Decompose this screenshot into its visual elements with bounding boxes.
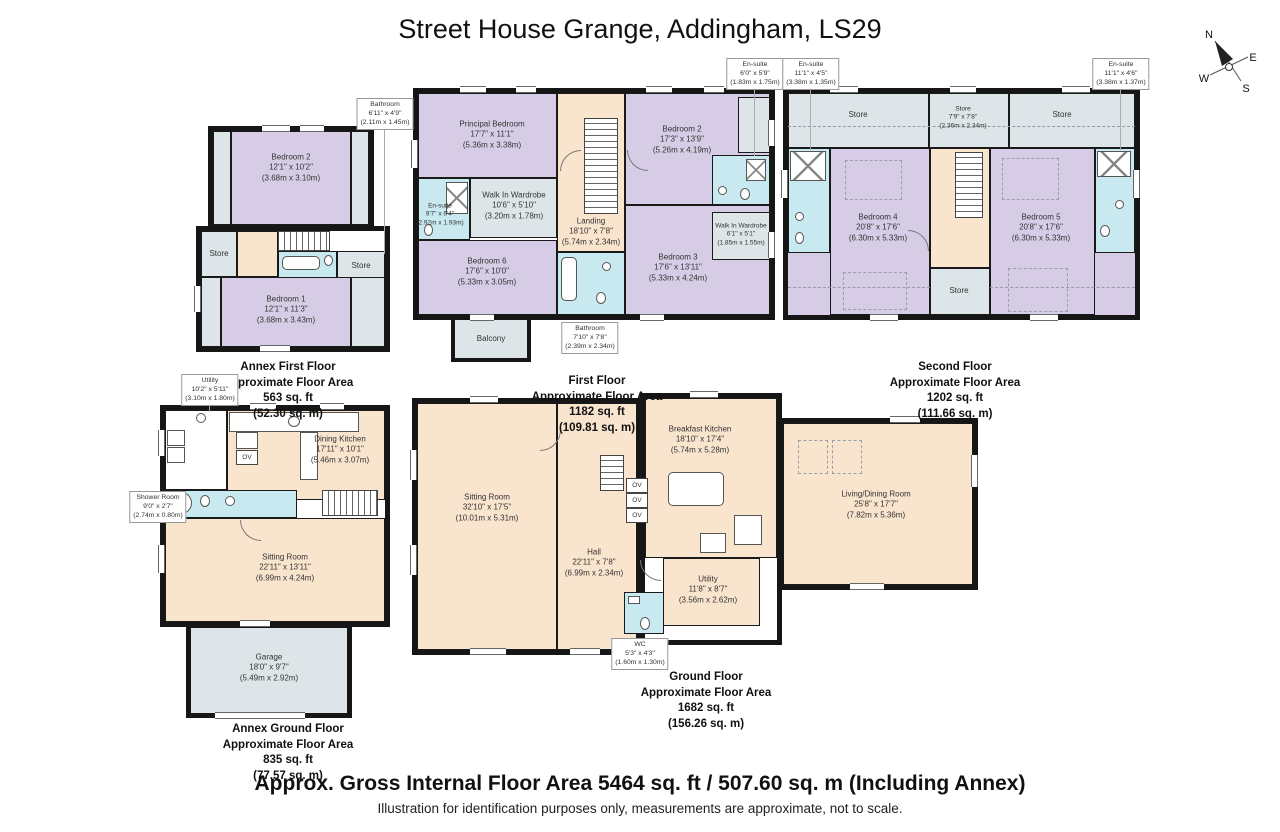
label-walk-in-wardrobe-right: Walk In Wardrobe6'1" x 5'1"(1.85m x 1.55… [715,222,767,247]
toilet-icon [795,232,804,244]
kitchen-island [668,472,724,506]
label-dining-kitchen: Dining Kitchen17'11" x 10'1"(5.46m x 3.0… [311,434,369,465]
window [1062,86,1090,93]
window [768,120,775,146]
skylight [843,272,907,310]
window [410,450,417,480]
gross-area-line: Approx. Gross Internal Floor Area 5464 s… [0,772,1280,796]
toilet-icon [200,495,210,507]
eaves-line [990,287,1135,288]
sink-icon [718,186,727,195]
window [850,583,884,590]
compass-icon: N E S W [1192,24,1264,100]
window [870,314,898,321]
room-bedroom4-eaves [788,253,832,315]
label-annex-bedroom1: Bedroom 112'1" x 11'3"(3.68m x 3.43m) [257,294,315,325]
label-first-landing: Landing18'10" x 7'8"(5.74m x 2.34m) [562,216,620,247]
callout-utility: Utility10'2" x 5'11"(3.10m x 1.80m) [181,374,238,406]
window [1133,170,1140,198]
appliance-icon [167,447,185,463]
label-annex-store-right: Store [351,261,370,271]
window [158,545,165,573]
stairs-annex-first [278,231,330,251]
window [300,125,324,132]
eaves-line [788,287,930,288]
oven-label: OV [626,508,648,523]
window [262,125,290,132]
hob-icon [236,432,258,449]
window [640,314,664,321]
label-principal-bedroom: Principal Bedroom17'7" x 11'1"(5.36m x 3… [459,119,524,150]
label-balcony: Balcony [477,334,505,344]
oven-label: OV [626,478,648,493]
wardrobe-strip [351,131,369,225]
appliance-icon [167,430,185,446]
stairs-ground-floor [600,455,624,491]
window [158,430,165,456]
window [260,345,290,352]
callout-annex-bathroom: Bathroom6'11" x 4'9"(2.11m x 1.45m) [357,98,414,130]
skylight [832,440,862,474]
label-bedroom3: Bedroom 317'6" x 13'11"(5.33m x 4.24m) [649,252,707,283]
room-ground-sitting-room [417,403,557,650]
boiler-icon [196,413,206,423]
svg-text:W: W [1199,73,1210,85]
window [470,396,498,403]
sink-icon [795,212,804,221]
label-bedroom5: Bedroom 520'8" x 17'6"(6.30m x 5.33m) [1012,212,1070,243]
window [950,86,976,93]
callout-first-ensuite: En-suite6'0" x 5'9"(1.83m x 1.75m) [726,58,783,90]
window [768,232,775,258]
shower-icon [746,159,766,181]
front-door [570,648,600,655]
label-breakfast-kitchen: Breakfast Kitchen18'10" x 17'4"(5.74m x … [669,424,732,455]
callout-first-bathroom: Bathroom7'10" x 7'8"(2.39m x 2.34m) [561,322,618,354]
callout-shower-room: Shower Room9'0" x 2'7"(2.74m x 0.80m) [129,491,186,523]
leader-line [754,86,755,156]
leader-line [384,126,385,254]
skylight [845,160,902,200]
label-living-dining: Living/Dining Room25'8" x 17'7"(7.82m x … [841,489,910,520]
sink-icon [628,596,640,604]
window [516,86,536,93]
stairs-second-floor [955,152,983,218]
label-annex-sitting-room: Sitting Room22'11" x 13'11"(6.99m x 4.24… [256,552,314,583]
skylight [1008,268,1068,312]
label-garage: Garage18'0" x 9'7"(5.49m x 2.92m) [240,652,298,683]
window [646,86,672,93]
leader-line [810,86,811,150]
label-bedroom6: Bedroom 617'6" x 10'0"(5.33m x 3.05m) [458,256,516,287]
label-bedroom4: Bedroom 420'8" x 17'6"(6.30m x 5.33m) [849,212,907,243]
label-ground-sitting-room: Sitting Room32'10" x 17'5"(10.01m x 5.31… [456,492,519,523]
hob-icon [700,533,726,553]
area-label-ground: Ground FloorApproximate Floor Area1682 s… [641,670,772,732]
label-second-store-mid: Store7'9" x 7'8"(2.36m x 2.34m) [939,105,986,130]
page-title: Street House Grange, Addingham, LS29 [0,14,1280,45]
sink-icon [1115,200,1124,209]
oven-label: OV [626,493,648,508]
wall [1008,93,1010,148]
label-annex-bedroom2: Bedroom 212'1" x 10'2"(3.68m x 3.10m) [262,152,320,183]
skylight [1002,158,1059,200]
label-second-store-left: Store [848,110,867,120]
room-bedroom5-eaves [1095,253,1135,315]
svg-text:N: N [1205,29,1213,41]
garage-door [215,712,305,719]
window [781,170,788,198]
window [470,648,506,655]
kitchen-counter [734,515,762,545]
window [194,286,201,312]
oven-label: OV [236,450,258,465]
sink-icon [225,496,235,506]
disclaimer: Illustration for identification purposes… [0,801,1280,816]
stairs-annex-ground [322,490,378,516]
toilet-icon [596,292,606,304]
label-second-store-right: Store [1052,110,1071,120]
area-label-annex-first: Annex First FloorApproximate Floor Area5… [223,360,354,422]
window [704,86,724,93]
window [411,140,418,168]
area-label-first: First FloorApproximate Floor Area1182 sq… [532,374,663,436]
area-label-annex-ground: Annex Ground FloorApproximate Floor Area… [223,722,354,784]
wardrobe-strip [213,131,231,225]
label-first-ensuite: En-suite9'7" x 6'4"(2.92m x 1.93m) [416,202,463,227]
wardrobe-strip [351,277,385,347]
shower-icon [1097,151,1131,177]
label-annex-store-left: Store [209,249,228,259]
wall [928,93,930,148]
leader-line [1120,86,1121,150]
callout-second-ensuite-right: En-suite11'1" x 4'6"(3.38m x 1.37m) [1092,58,1149,90]
label-first-bedroom2: Bedroom 217'3" x 13'9"(5.26m x 4.19m) [653,124,711,155]
toilet-icon [1100,225,1110,237]
toilet-icon [640,617,650,630]
room-annex-landing [237,231,278,277]
window [470,314,494,321]
svg-text:S: S [1242,83,1249,95]
bathtub-icon [282,256,320,270]
area-label-second: Second FloorApproximate Floor Area1202 s… [890,360,1021,422]
window [690,391,718,398]
wardrobe-strip [201,277,221,347]
toilet-icon [324,255,333,266]
svg-text:E: E [1249,52,1256,64]
toilet-icon [740,188,750,200]
skylight [798,440,828,474]
stairs-first-floor [584,118,618,214]
window [410,545,417,575]
bathtub-icon [561,257,577,301]
label-second-store-bottom: Store [949,286,968,296]
label-walk-in-wardrobe-left: Walk In Wardrobe10'6" x 5'10"(3.20m x 1.… [482,190,545,221]
sink-icon [602,262,611,271]
label-ground-utility: Utility11'8" x 8'7"(3.56m x 2.62m) [679,574,737,605]
window [1030,314,1058,321]
window [240,620,270,627]
callout-wc: WC5'3" x 4'3"(1.60m x 1.30m) [611,638,668,670]
window [971,455,978,487]
label-hall: Hall22'11" x 7'8"(6.99m x 2.34m) [565,547,623,578]
callout-second-ensuite-left: En-suite11'1" x 4'5"(3.38m x 1.35m) [782,58,839,90]
shower-icon [790,151,826,181]
window [460,86,486,93]
